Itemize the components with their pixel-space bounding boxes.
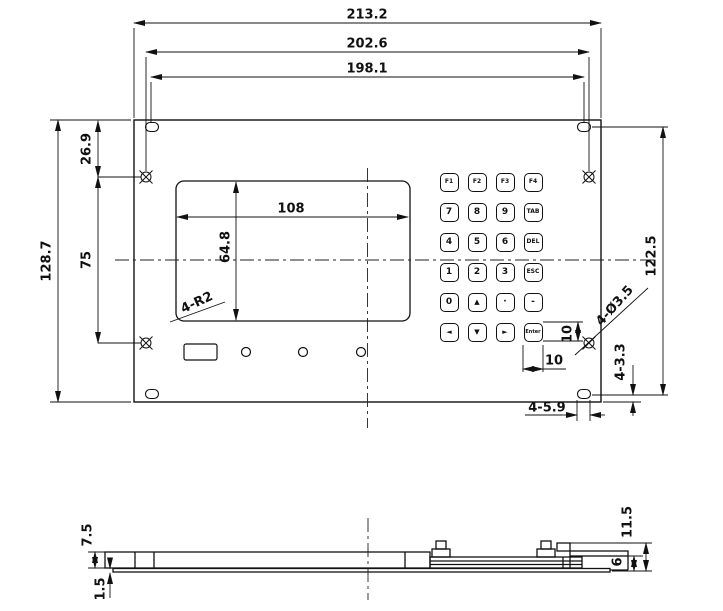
dim-overall-width: 213.2 — [346, 9, 387, 22]
key-7: 7 — [440, 203, 459, 222]
key-3: 3 — [496, 263, 515, 282]
key-◄: ◄ — [440, 323, 459, 342]
dim-window-width: 108 — [277, 203, 304, 216]
key-F2: F2 — [468, 173, 487, 192]
dim-hole-spacing-v: 75 — [81, 251, 94, 269]
key-TAB: TAB — [524, 203, 543, 222]
key-F1: F1 — [440, 173, 459, 192]
key-0: 0 — [440, 293, 459, 312]
dim-slot-span-v: 122.5 — [646, 235, 659, 276]
key-F4: F4 — [524, 173, 543, 192]
dim-overall-height: 128.7 — [41, 240, 54, 281]
key-▲: ▲ — [468, 293, 487, 312]
key-4: 4 — [440, 233, 459, 252]
dim-key-height: 10 — [562, 325, 575, 343]
dim-stack-height: 6 — [612, 557, 625, 566]
key-5: 5 — [468, 233, 487, 252]
key-►: ► — [496, 323, 515, 342]
key-ESC: ESC — [524, 263, 543, 282]
key-9: 9 — [496, 203, 515, 222]
dim-slot-offset: 4-3.3 — [615, 343, 628, 380]
dim-key-width: 10 — [545, 355, 563, 368]
dim-slot-span-h: 198.1 — [346, 63, 387, 76]
dim-panel-thickness: 7.5 — [82, 523, 95, 546]
key--: - — [524, 293, 543, 312]
dim-total-height: 11.5 — [622, 506, 635, 538]
dim-hole-span-h: 202.6 — [346, 38, 387, 51]
key-F3: F3 — [496, 173, 515, 192]
dim-base-thickness: 1.5 — [95, 577, 108, 600]
key-Enter: Enter — [524, 323, 543, 342]
dim-window-height: 64.8 — [220, 231, 233, 263]
key-▼: ▼ — [468, 323, 487, 342]
drawing-canvas: F1F2F3F4789TAB456DEL123ESC0▲·-◄▼►Enter 2… — [0, 0, 723, 611]
key-2: 2 — [468, 263, 487, 282]
key-6: 6 — [496, 233, 515, 252]
dim-edge-to-hole: 26.9 — [81, 133, 94, 165]
key-8: 8 — [468, 203, 487, 222]
dim-slot-width: 4-5.9 — [528, 402, 565, 415]
key-·: · — [496, 293, 515, 312]
key-DEL: DEL — [524, 233, 543, 252]
key-1: 1 — [440, 263, 459, 282]
